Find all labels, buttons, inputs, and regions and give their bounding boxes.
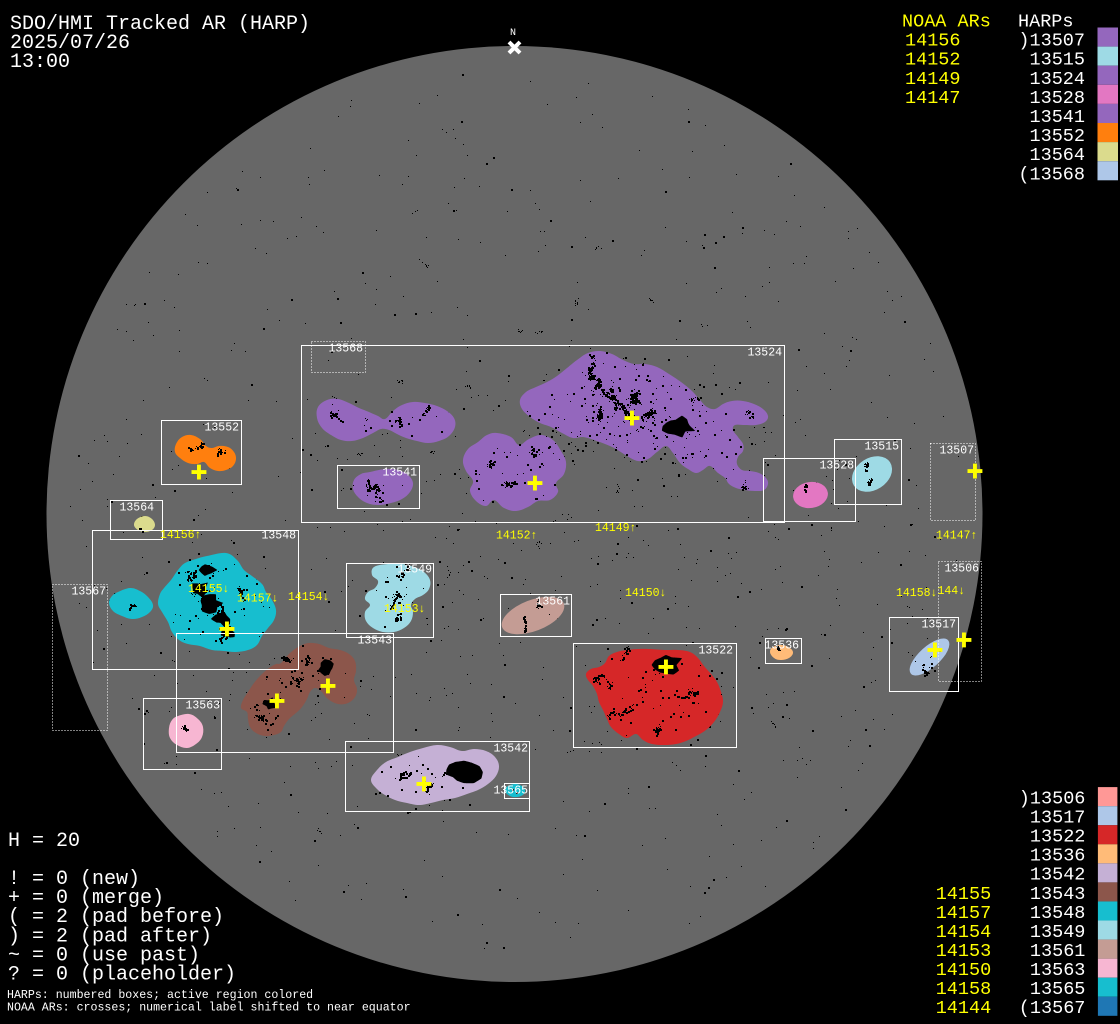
svg-text:14156↑: 14156↑ [160, 529, 201, 542]
svg-text:13552: 13552 [1030, 126, 1086, 147]
svg-text:13541: 13541 [382, 467, 417, 480]
svg-text:13542: 13542 [1030, 865, 1086, 886]
svg-text:? = 0 (placeholder): ? = 0 (placeholder) [8, 964, 236, 987]
svg-text:13506: 13506 [1030, 789, 1086, 810]
svg-text:14158↓: 14158↓ [896, 587, 937, 600]
svg-text:13565: 13565 [1030, 979, 1086, 1000]
svg-text:14150: 14150 [936, 960, 992, 981]
svg-text:): ) [1019, 789, 1030, 810]
svg-text:13565: 13565 [493, 785, 528, 798]
svg-text:13567: 13567 [71, 586, 106, 599]
svg-text:13528: 13528 [819, 460, 854, 473]
svg-text:13507: 13507 [939, 445, 974, 458]
svg-text:HARPs: HARPs [1018, 12, 1074, 33]
svg-text:13549: 13549 [1030, 922, 1086, 943]
svg-text:13528: 13528 [1030, 88, 1086, 109]
svg-text:13524: 13524 [747, 347, 782, 360]
svg-text:14153↓: 14153↓ [384, 603, 425, 616]
svg-text:13541: 13541 [1030, 107, 1086, 128]
svg-text:(: ( [1018, 164, 1029, 185]
svg-text:14155↓: 14155↓ [188, 583, 229, 596]
svg-text:13517: 13517 [1030, 808, 1086, 829]
svg-text:N: N [510, 28, 516, 39]
svg-text:14156: 14156 [905, 31, 961, 52]
svg-text:14149↑: 14149↑ [595, 522, 636, 535]
svg-text:14158: 14158 [936, 979, 992, 1000]
svg-text:13564: 13564 [119, 502, 154, 515]
svg-text:14154↓: 14154↓ [288, 591, 329, 604]
svg-text:13522: 13522 [1030, 827, 1086, 848]
svg-text:144↓: 144↓ [938, 585, 966, 598]
svg-text:13524: 13524 [1030, 69, 1086, 90]
svg-text:13568: 13568 [1030, 164, 1086, 185]
svg-text:14147↑: 14147↑ [936, 530, 977, 543]
svg-text:14155: 14155 [936, 884, 992, 905]
svg-text:13568: 13568 [328, 343, 363, 356]
svg-text:13543: 13543 [1030, 884, 1086, 905]
svg-text:13536: 13536 [1030, 846, 1086, 867]
svg-text:13507: 13507 [1030, 31, 1086, 52]
svg-text:14149: 14149 [905, 69, 961, 90]
svg-text:14147: 14147 [905, 88, 961, 109]
svg-text:13567: 13567 [1030, 998, 1086, 1019]
svg-text:13542: 13542 [493, 743, 528, 756]
svg-text:): ) [1018, 31, 1029, 52]
svg-text:13515: 13515 [864, 441, 899, 454]
svg-text:13506: 13506 [944, 563, 979, 576]
svg-text:HARPs: numbered boxes; active: HARPs: numbered boxes; active region col… [7, 989, 313, 1002]
svg-text:NOAA ARs: NOAA ARs [902, 12, 991, 33]
svg-text:14152: 14152 [905, 50, 961, 71]
svg-text:13563: 13563 [1030, 960, 1086, 981]
svg-text:(: ( [1019, 998, 1030, 1019]
svg-text:14154: 14154 [936, 922, 992, 943]
svg-text:13522: 13522 [698, 645, 733, 658]
svg-text:14144: 14144 [936, 998, 992, 1019]
svg-text:13517: 13517 [921, 619, 956, 632]
svg-text:13564: 13564 [1030, 145, 1086, 166]
svg-text:14157: 14157 [936, 903, 992, 924]
svg-text:13563: 13563 [185, 700, 220, 713]
svg-text:14157↓: 14157↓ [237, 593, 278, 606]
svg-text:13552: 13552 [204, 422, 239, 435]
svg-text:13:00: 13:00 [10, 51, 70, 74]
svg-text:13515: 13515 [1030, 50, 1086, 71]
svg-text:14152↑: 14152↑ [496, 530, 537, 543]
svg-text:13549: 13549 [397, 564, 432, 577]
svg-text:NOAA ARs: crosses; numerical l: NOAA ARs: crosses; numerical label shift… [7, 1002, 411, 1015]
svg-text:13561: 13561 [535, 596, 570, 609]
svg-text:H = 20: H = 20 [8, 830, 80, 853]
svg-text:13561: 13561 [1030, 941, 1086, 962]
svg-text:14150↓: 14150↓ [625, 587, 666, 600]
svg-text:13536: 13536 [764, 640, 799, 653]
svg-text:13543: 13543 [357, 635, 392, 648]
svg-text:13548: 13548 [261, 530, 296, 543]
svg-text:13548: 13548 [1030, 903, 1086, 924]
svg-text:14153: 14153 [936, 941, 992, 962]
